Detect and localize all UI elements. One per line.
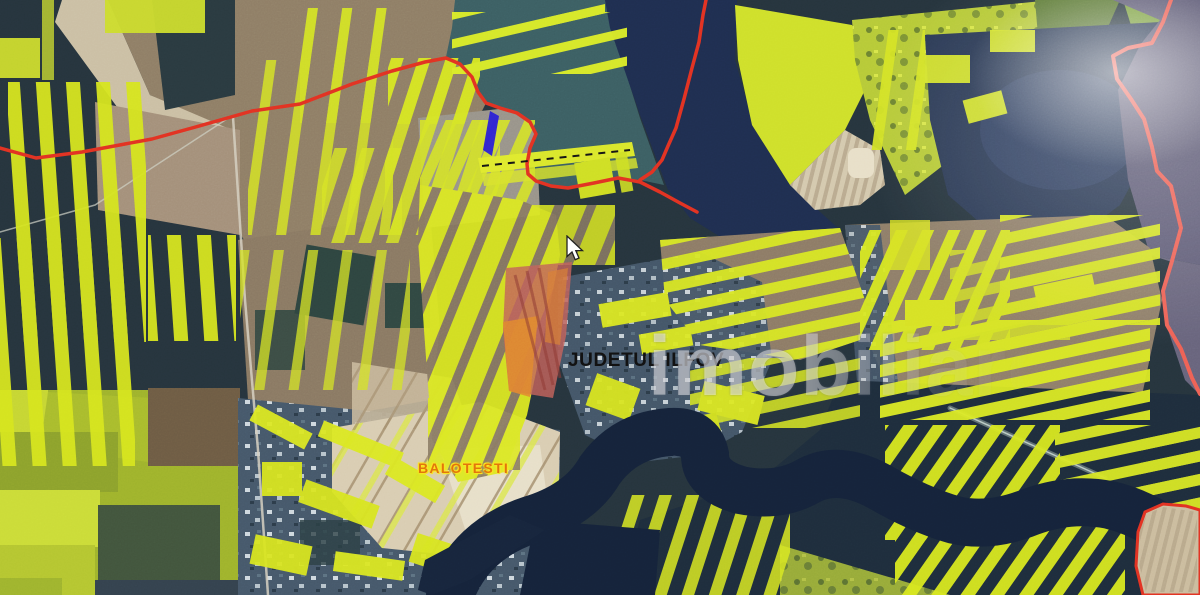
photo-grain-overlay	[0, 0, 1200, 595]
satellite-map-canvas[interactable]	[0, 0, 1200, 595]
map-viewport[interactable]: JUDETUL ILFOV BALOTESTI imobiliare	[0, 0, 1200, 595]
